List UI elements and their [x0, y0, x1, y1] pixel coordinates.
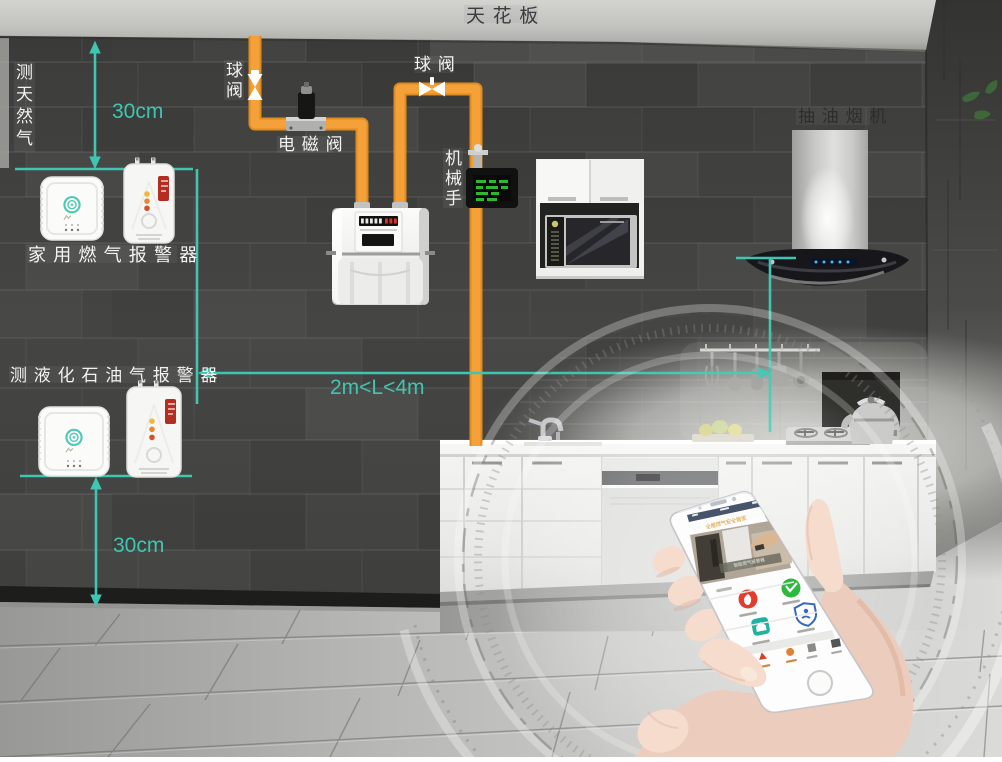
svg-text:家用燃气报警器: 家用燃气报警器 — [28, 245, 204, 265]
svg-text:测: 测 — [16, 63, 33, 82]
svg-text:2m<L<4m: 2m<L<4m — [330, 376, 425, 399]
svg-text:球阀: 球阀 — [414, 55, 462, 74]
svg-text:天花板: 天花板 — [466, 5, 546, 27]
svg-text:30cm: 30cm — [113, 534, 164, 557]
svg-text:气: 气 — [16, 129, 33, 148]
svg-text:测液化石油气报警器: 测液化石油气报警器 — [10, 366, 224, 385]
svg-text:球: 球 — [226, 61, 243, 80]
svg-text:抽油烟机: 抽油烟机 — [798, 107, 893, 126]
svg-text:械: 械 — [445, 169, 462, 188]
svg-text:机: 机 — [445, 149, 462, 168]
svg-text:然: 然 — [16, 107, 33, 126]
svg-text:天: 天 — [16, 85, 33, 104]
svg-text:阀: 阀 — [226, 81, 243, 100]
svg-text:手: 手 — [445, 189, 462, 208]
svg-text:30cm: 30cm — [112, 100, 163, 123]
svg-text:电磁阀: 电磁阀 — [278, 135, 349, 154]
